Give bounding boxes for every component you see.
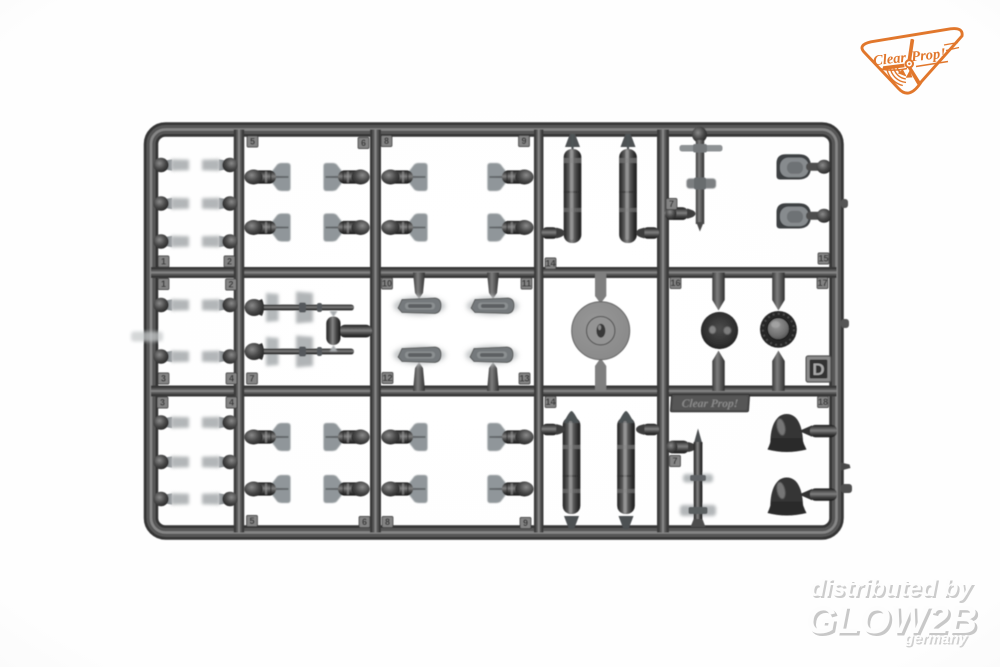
svg-text:3: 3: [160, 398, 165, 408]
svg-text:7: 7: [669, 199, 674, 209]
svg-text:6: 6: [361, 138, 366, 148]
svg-text:1: 1: [161, 257, 166, 267]
svg-text:14: 14: [545, 259, 555, 269]
svg-text:Clear Prop!: Clear Prop!: [681, 398, 738, 410]
svg-text:8: 8: [385, 517, 390, 527]
svg-text:D: D: [812, 360, 824, 379]
svg-text:2: 2: [228, 280, 233, 290]
svg-text:5: 5: [249, 516, 254, 526]
svg-text:5: 5: [250, 137, 255, 147]
svg-text:4: 4: [229, 398, 234, 408]
svg-text:15: 15: [818, 254, 828, 264]
svg-text:3: 3: [161, 374, 166, 384]
svg-text:8: 8: [384, 136, 389, 146]
svg-text:12: 12: [382, 373, 392, 383]
svg-text:9: 9: [523, 518, 528, 528]
svg-text:9: 9: [521, 136, 526, 146]
svg-text:1: 1: [161, 279, 166, 289]
svg-text:14: 14: [545, 397, 555, 407]
svg-text:7: 7: [249, 374, 254, 384]
svg-text:17: 17: [817, 278, 827, 288]
svg-text:13: 13: [519, 374, 529, 384]
svg-text:distributed by: distributed by: [810, 575, 973, 602]
svg-text:2: 2: [227, 257, 232, 267]
svg-text:6: 6: [362, 517, 367, 527]
svg-text:16: 16: [670, 278, 680, 288]
svg-text:4: 4: [229, 374, 234, 384]
svg-text:18: 18: [818, 397, 828, 407]
svg-text:10: 10: [382, 279, 392, 289]
svg-text:11: 11: [522, 279, 532, 289]
svg-text:germany: germany: [903, 630, 967, 647]
svg-text:7: 7: [672, 456, 677, 466]
